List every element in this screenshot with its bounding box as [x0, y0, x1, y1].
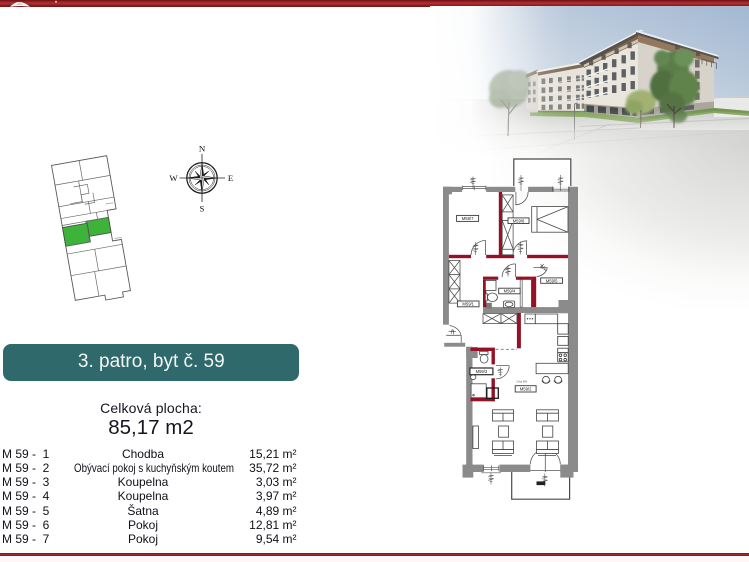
svg-text:M59/2: M59/2	[520, 387, 532, 392]
svg-text:2+kp 900: 2+kp 900	[517, 379, 528, 383]
svg-text:M59/7: M59/7	[462, 216, 474, 221]
svg-text:M59/6: M59/6	[513, 218, 525, 223]
svg-text:M59/5: M59/5	[546, 278, 558, 283]
svg-text:M59/4: M59/4	[504, 289, 516, 294]
svg-text:M59/3: M59/3	[476, 369, 488, 374]
svg-text:M59/1: M59/1	[462, 302, 474, 307]
